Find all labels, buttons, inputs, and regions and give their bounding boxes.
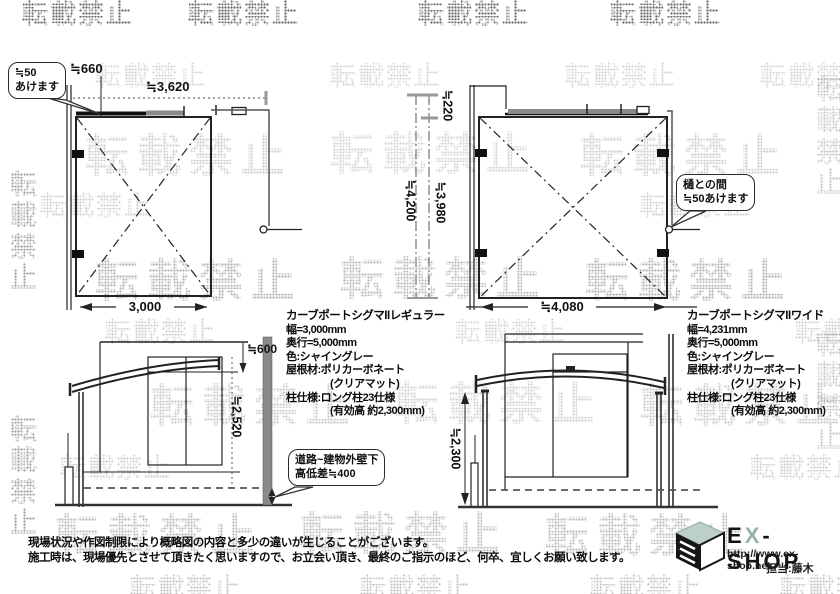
dim-label-2300: ≒2,300 [449,423,464,475]
drain-circle [260,226,267,233]
spec-line: 柱仕様:ロング柱23仕様 [687,392,825,406]
product-title-regular: カーブポートシグマIIレギュラー [286,310,445,324]
spec-line: 奥行=5,000mm [687,337,825,351]
dim-label-2520: ≒2,520 [230,391,245,443]
callout-line: あけます [15,81,59,95]
dim-label-660: ≒660 [70,61,103,77]
dim-label-600: ≒600 [247,342,277,356]
spec-line: (有効高 約2,300mm) [687,405,825,419]
plan-view-regular [48,76,302,311]
note-line-2: 施工時は、現場優先とさせて頂きたく思いますので、お立会い頂き、最終のご指示のほど… [28,551,630,566]
ex-shop-cube-icon [674,520,728,574]
dim-label-3620: ≒3,620 [146,79,189,95]
callout-line: 樋との間 [683,179,748,193]
spec-line: 色:シャイングレー [687,351,825,365]
footer-notes: 現場状況や作図制限により概略図の内容と多少の違いが生じることがございます。 施工… [28,536,630,565]
callout-line: 道路~建物外壁下 [295,454,378,468]
spec-line: 屋根材:ポリカーボネート [687,364,825,378]
spec-line: (クリアマット) [286,378,445,392]
plan-view-wide [466,85,706,311]
spec-line: (有効高 約2,300mm) [286,405,445,419]
spec-line: 奥行=5,000mm [286,337,445,351]
spec-block-wide: カーブポートシグマIIワイド 幅=4,231mm 奥行=5,000mm 色:シャ… [687,310,825,419]
dim-label-3000: 3,000 [116,300,174,314]
brand-letter-x: X [745,523,763,548]
elevation-front-view [458,334,718,507]
dim-label-220: ≒220 [441,84,456,128]
spec-line: 幅=4,231mm [687,324,825,338]
elevation-side-view [55,337,313,507]
brand-letter-e: E [727,523,745,548]
spec-line: (クリアマット) [687,378,825,392]
dim-label-4200: ≒4,200 [404,176,419,226]
spec-line: 柱仕様:ロング柱23仕様 [286,392,445,406]
spec-block-regular: カーブポートシグマIIレギュラー 幅=3,000mm 奥行=5,000mm 色:… [286,310,445,419]
product-title-wide: カーブポートシグマIIワイド [687,310,825,324]
drawing-linework [0,0,840,594]
dim-label-3980: ≒3,980 [434,178,449,228]
dim-label-4080: ≒4,080 [528,300,596,314]
callout-line: ≒50 [15,67,59,81]
callout-line: 高低差≒400 [295,468,378,482]
spec-line: 幅=3,000mm [286,324,445,338]
note-line-1: 現場状況や作図制限により概略図の内容と多少の違いが生じることがございます。 [28,536,630,551]
callout-height-difference: 道路~建物外壁下 高低差≒400 [288,449,385,486]
callout-gap-regular: ≒50 あけます [8,62,66,99]
spec-line: 屋根材:ポリカーボネート [286,364,445,378]
contact-person: 担当:藤木 [766,560,814,576]
callout-line: ≒50あけます [683,193,748,207]
carport-drawing-page: 転載禁止転載禁止転載禁止転載禁止転載禁止転載禁止転載禁止転載禁止転載禁止転載禁止… [0,0,840,594]
callout-gutter-gap: 樋との間 ≒50あけます [676,174,755,211]
spec-line: 色:シャイングレー [286,351,445,365]
